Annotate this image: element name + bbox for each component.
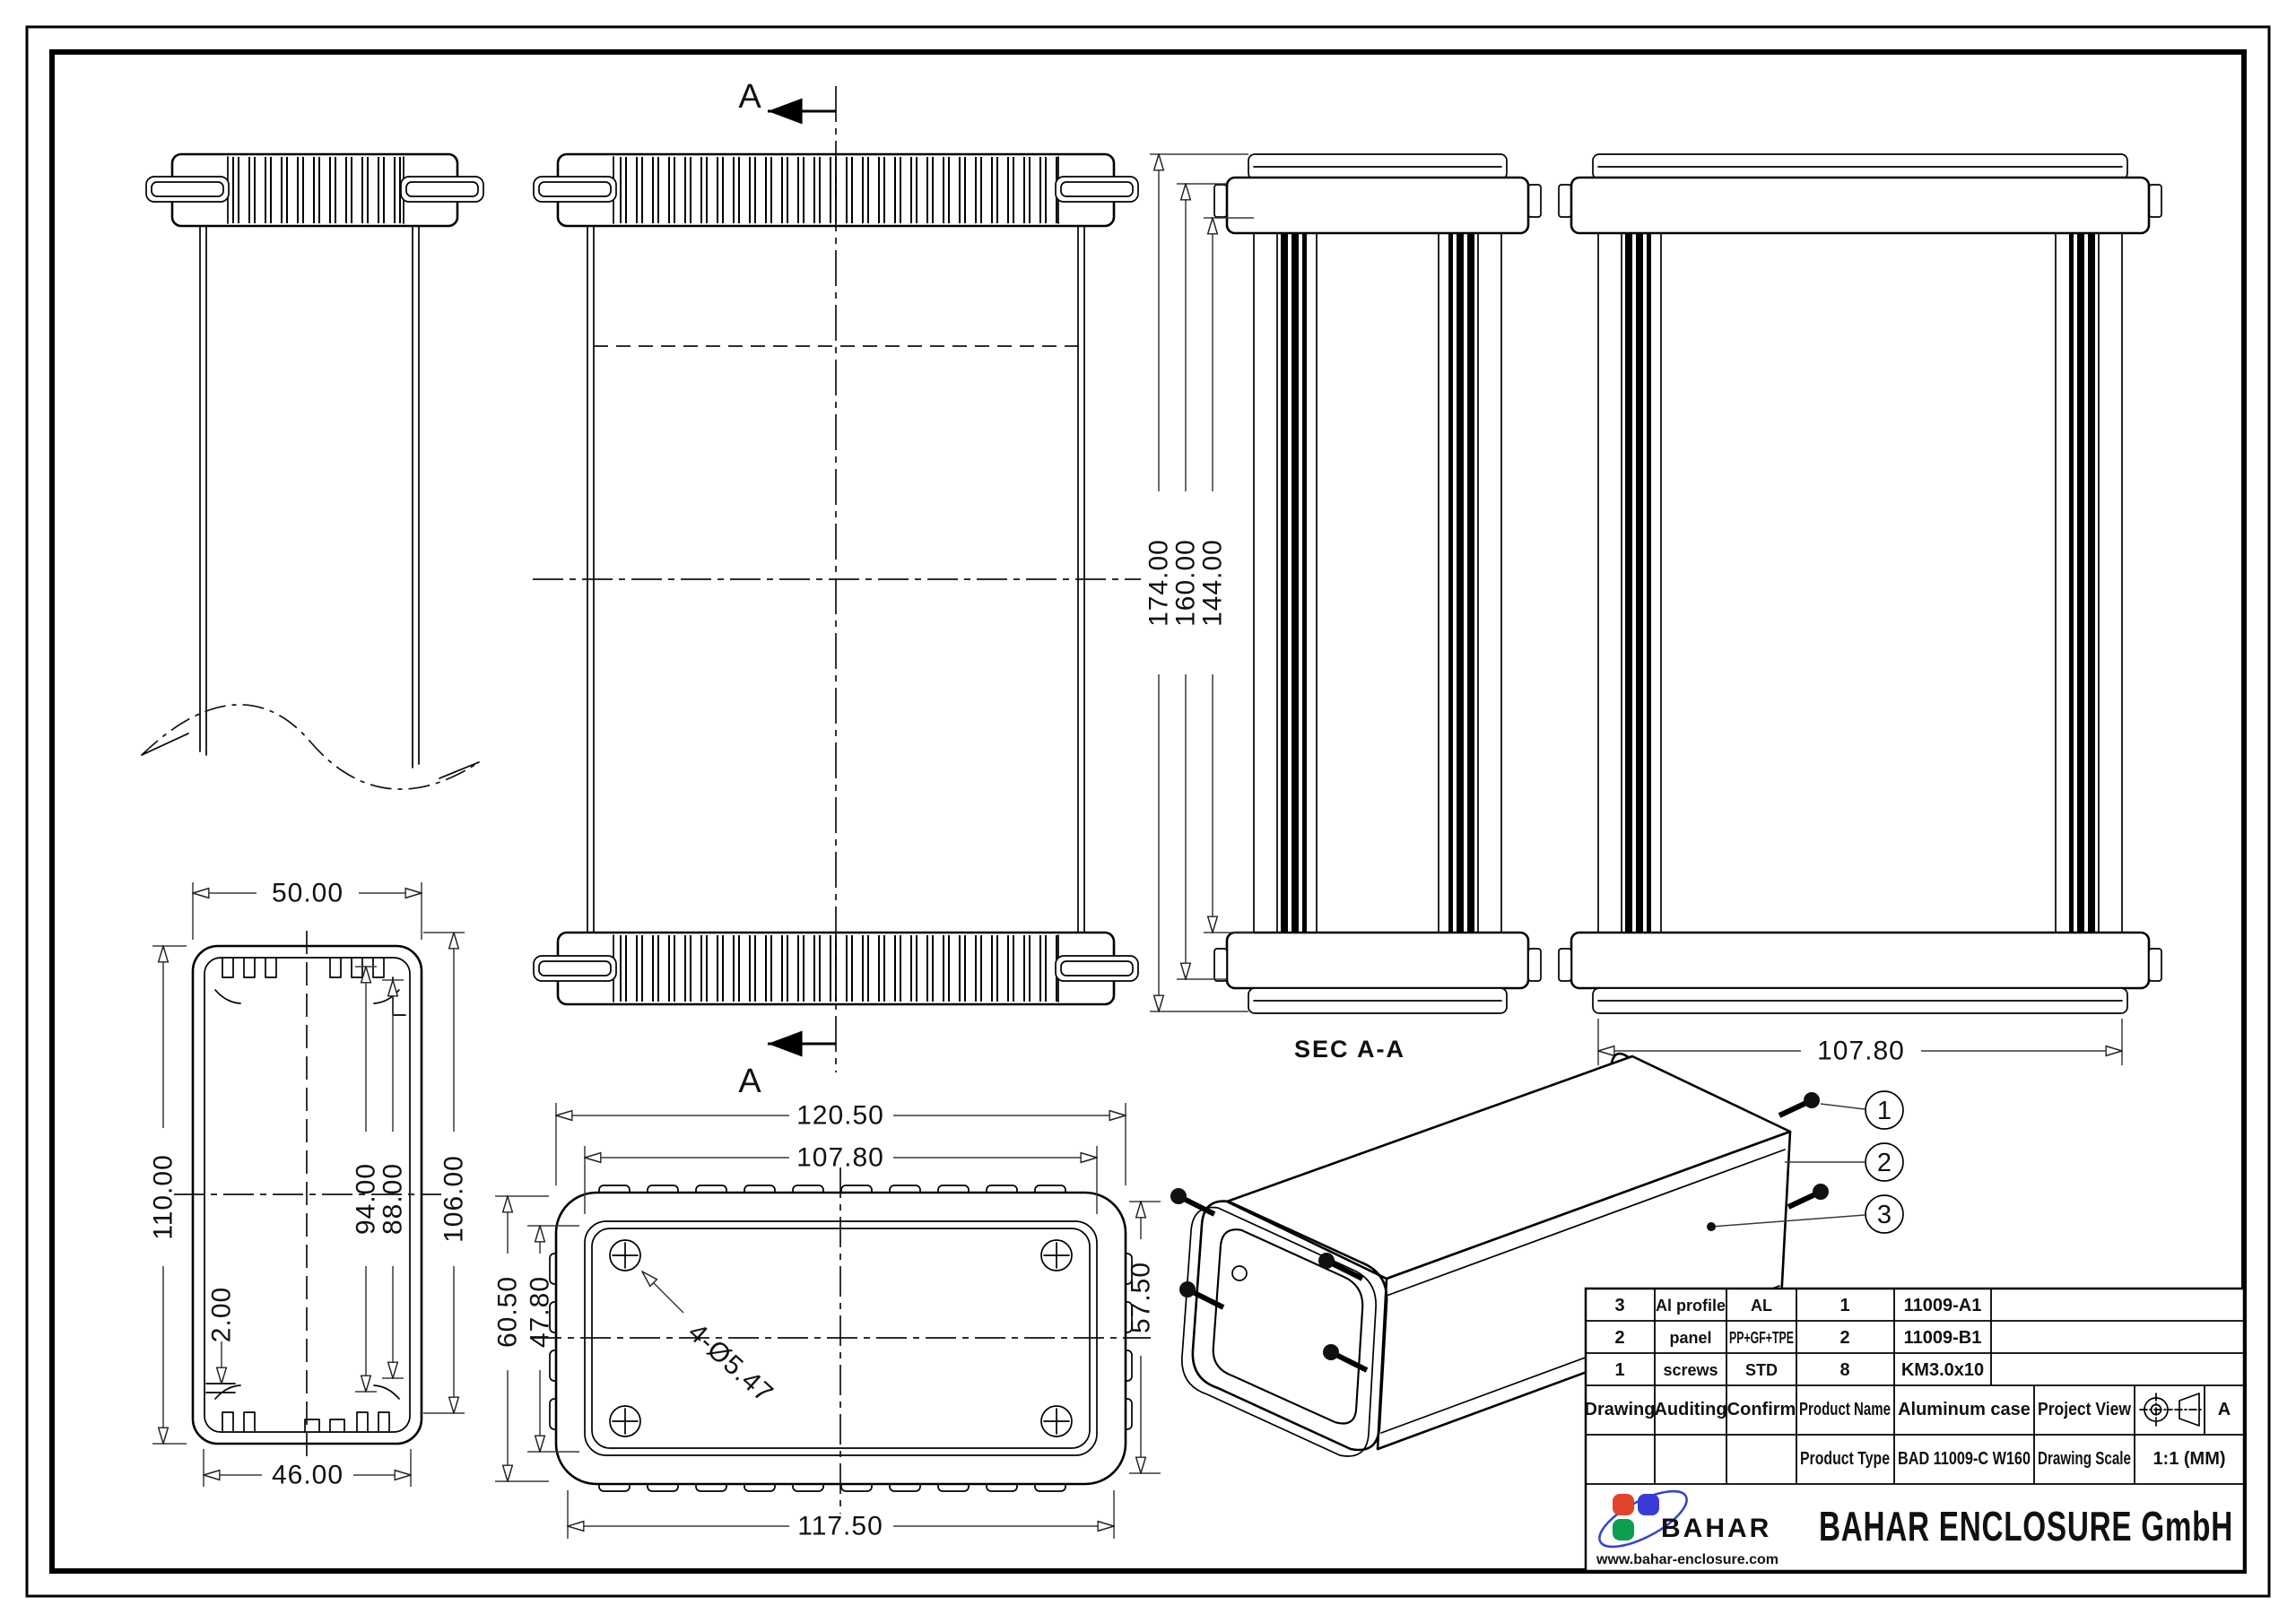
svg-text:Confirm: Confirm xyxy=(1727,1400,1796,1419)
svg-text:60.50: 60.50 xyxy=(493,1276,523,1348)
svg-text:2.00: 2.00 xyxy=(207,1287,237,1342)
svg-text:Auditing: Auditing xyxy=(1654,1400,1726,1419)
svg-text:Product Name: Product Name xyxy=(1799,1400,1891,1419)
view-profile: 50.00 110.00 94.00 88.00 xyxy=(149,879,469,1490)
logo-wordmark: BAHAR xyxy=(1661,1514,1771,1543)
svg-text:46.00: 46.00 xyxy=(272,1461,344,1490)
company-name: BAHAR ENCLOSURE GmbH xyxy=(1819,1503,2233,1549)
svg-text:2: 2 xyxy=(1614,1328,1624,1348)
title-block: 3 Al profile AL 1 11009-A1 2 panel PP+GF… xyxy=(1585,1289,2244,1571)
svg-text:Product Type: Product Type xyxy=(1800,1449,1890,1469)
svg-text:8: 8 xyxy=(1839,1360,1849,1380)
svg-text:1: 1 xyxy=(1839,1296,1849,1315)
svg-text:11009-B1: 11009-B1 xyxy=(1904,1328,1982,1348)
svg-text:screws: screws xyxy=(1663,1361,1718,1379)
svg-text:11009-A1: 11009-A1 xyxy=(1904,1296,1982,1315)
svg-text:47.80: 47.80 xyxy=(526,1276,555,1348)
svg-text:3: 3 xyxy=(1614,1296,1624,1315)
svg-text:50.00: 50.00 xyxy=(272,879,344,908)
svg-text:160.00: 160.00 xyxy=(1171,539,1201,627)
svg-text:STD: STD xyxy=(1745,1361,1778,1379)
svg-text:Al profile: Al profile xyxy=(1656,1297,1726,1315)
svg-text:Drawing: Drawing xyxy=(1585,1400,1656,1419)
balloon-1-label: 1 xyxy=(1877,1097,1892,1125)
company-website: www.bahar-enclosure.com xyxy=(1596,1552,1779,1567)
svg-text:88.00: 88.00 xyxy=(378,1163,408,1235)
svg-text:Project View: Project View xyxy=(2038,1400,2131,1419)
svg-text:94.00: 94.00 xyxy=(352,1163,381,1235)
svg-text:panel: panel xyxy=(1669,1329,1711,1347)
section-label-bottom: A xyxy=(738,1063,761,1100)
svg-text:PP+GF+TPE: PP+GF+TPE xyxy=(1729,1329,1794,1347)
svg-text:110.00: 110.00 xyxy=(149,1154,178,1240)
svg-text:BAD 11009-C W160: BAD 11009-C W160 xyxy=(1898,1449,2031,1469)
svg-text:174.00: 174.00 xyxy=(1144,539,1174,627)
svg-text:A: A xyxy=(2218,1400,2231,1419)
balloon-2-label: 2 xyxy=(1877,1149,1892,1177)
svg-text:106.00: 106.00 xyxy=(439,1155,469,1243)
svg-text:120.50: 120.50 xyxy=(796,1101,884,1131)
svg-text:AL: AL xyxy=(1751,1297,1772,1315)
svg-text:107.80: 107.80 xyxy=(796,1143,884,1173)
svg-text:107.80: 107.80 xyxy=(1817,1037,1905,1066)
svg-text:2: 2 xyxy=(1839,1328,1849,1348)
drawing-sheet: A A SEC A-A 174.00 xyxy=(0,0,2296,1623)
svg-text:144.00: 144.00 xyxy=(1198,539,1228,627)
svg-text:Aluminum case: Aluminum case xyxy=(1898,1400,2031,1419)
section-label-top: A xyxy=(738,78,761,116)
info-row-values: Product Type BAD 11009-C W160 Drawing Sc… xyxy=(1800,1449,2226,1469)
cad-drawing: A A SEC A-A 174.00 xyxy=(0,0,2296,1623)
svg-text:KM3.0x10: KM3.0x10 xyxy=(1901,1360,1984,1380)
svg-text:57.50: 57.50 xyxy=(1126,1262,1156,1333)
svg-text:Drawing Scale: Drawing Scale xyxy=(2038,1449,2131,1469)
section-view-title: SEC A-A xyxy=(1294,1036,1405,1063)
svg-text:1: 1 xyxy=(1614,1360,1624,1380)
logo-blue-quadrant xyxy=(1638,1494,1659,1515)
balloon-3-label: 3 xyxy=(1877,1201,1892,1229)
svg-text:117.50: 117.50 xyxy=(797,1512,883,1541)
logo-red-quadrant xyxy=(1613,1494,1634,1515)
svg-text:1:1 (MM): 1:1 (MM) xyxy=(2152,1449,2225,1469)
logo-green-quadrant xyxy=(1613,1519,1634,1541)
